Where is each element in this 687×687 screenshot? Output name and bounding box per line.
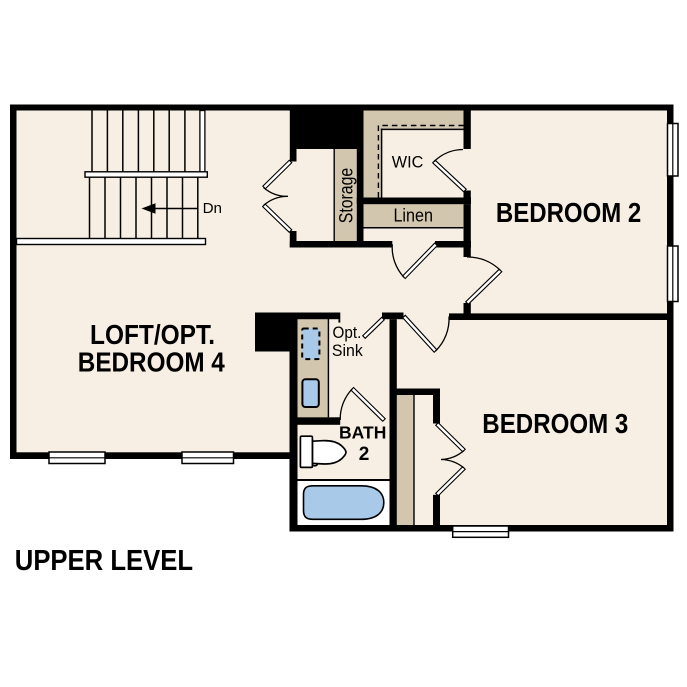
- svg-text:Opt.: Opt.: [333, 323, 362, 342]
- svg-text:BEDROOM 4: BEDROOM 4: [78, 347, 225, 378]
- svg-text:BEDROOM 2: BEDROOM 2: [496, 197, 641, 228]
- svg-text:WIC: WIC: [392, 153, 424, 171]
- svg-text:Linen: Linen: [393, 204, 433, 225]
- svg-text:Storage: Storage: [337, 168, 358, 224]
- svg-text:Dn: Dn: [203, 200, 222, 217]
- svg-text:BEDROOM 3: BEDROOM 3: [482, 408, 628, 439]
- svg-text:LOFT/OPT.: LOFT/OPT.: [90, 319, 215, 350]
- svg-text:Sink: Sink: [332, 341, 363, 360]
- svg-text:2: 2: [359, 444, 370, 465]
- svg-text:BATH: BATH: [339, 422, 386, 442]
- svg-text:UPPER LEVEL: UPPER LEVEL: [15, 545, 193, 577]
